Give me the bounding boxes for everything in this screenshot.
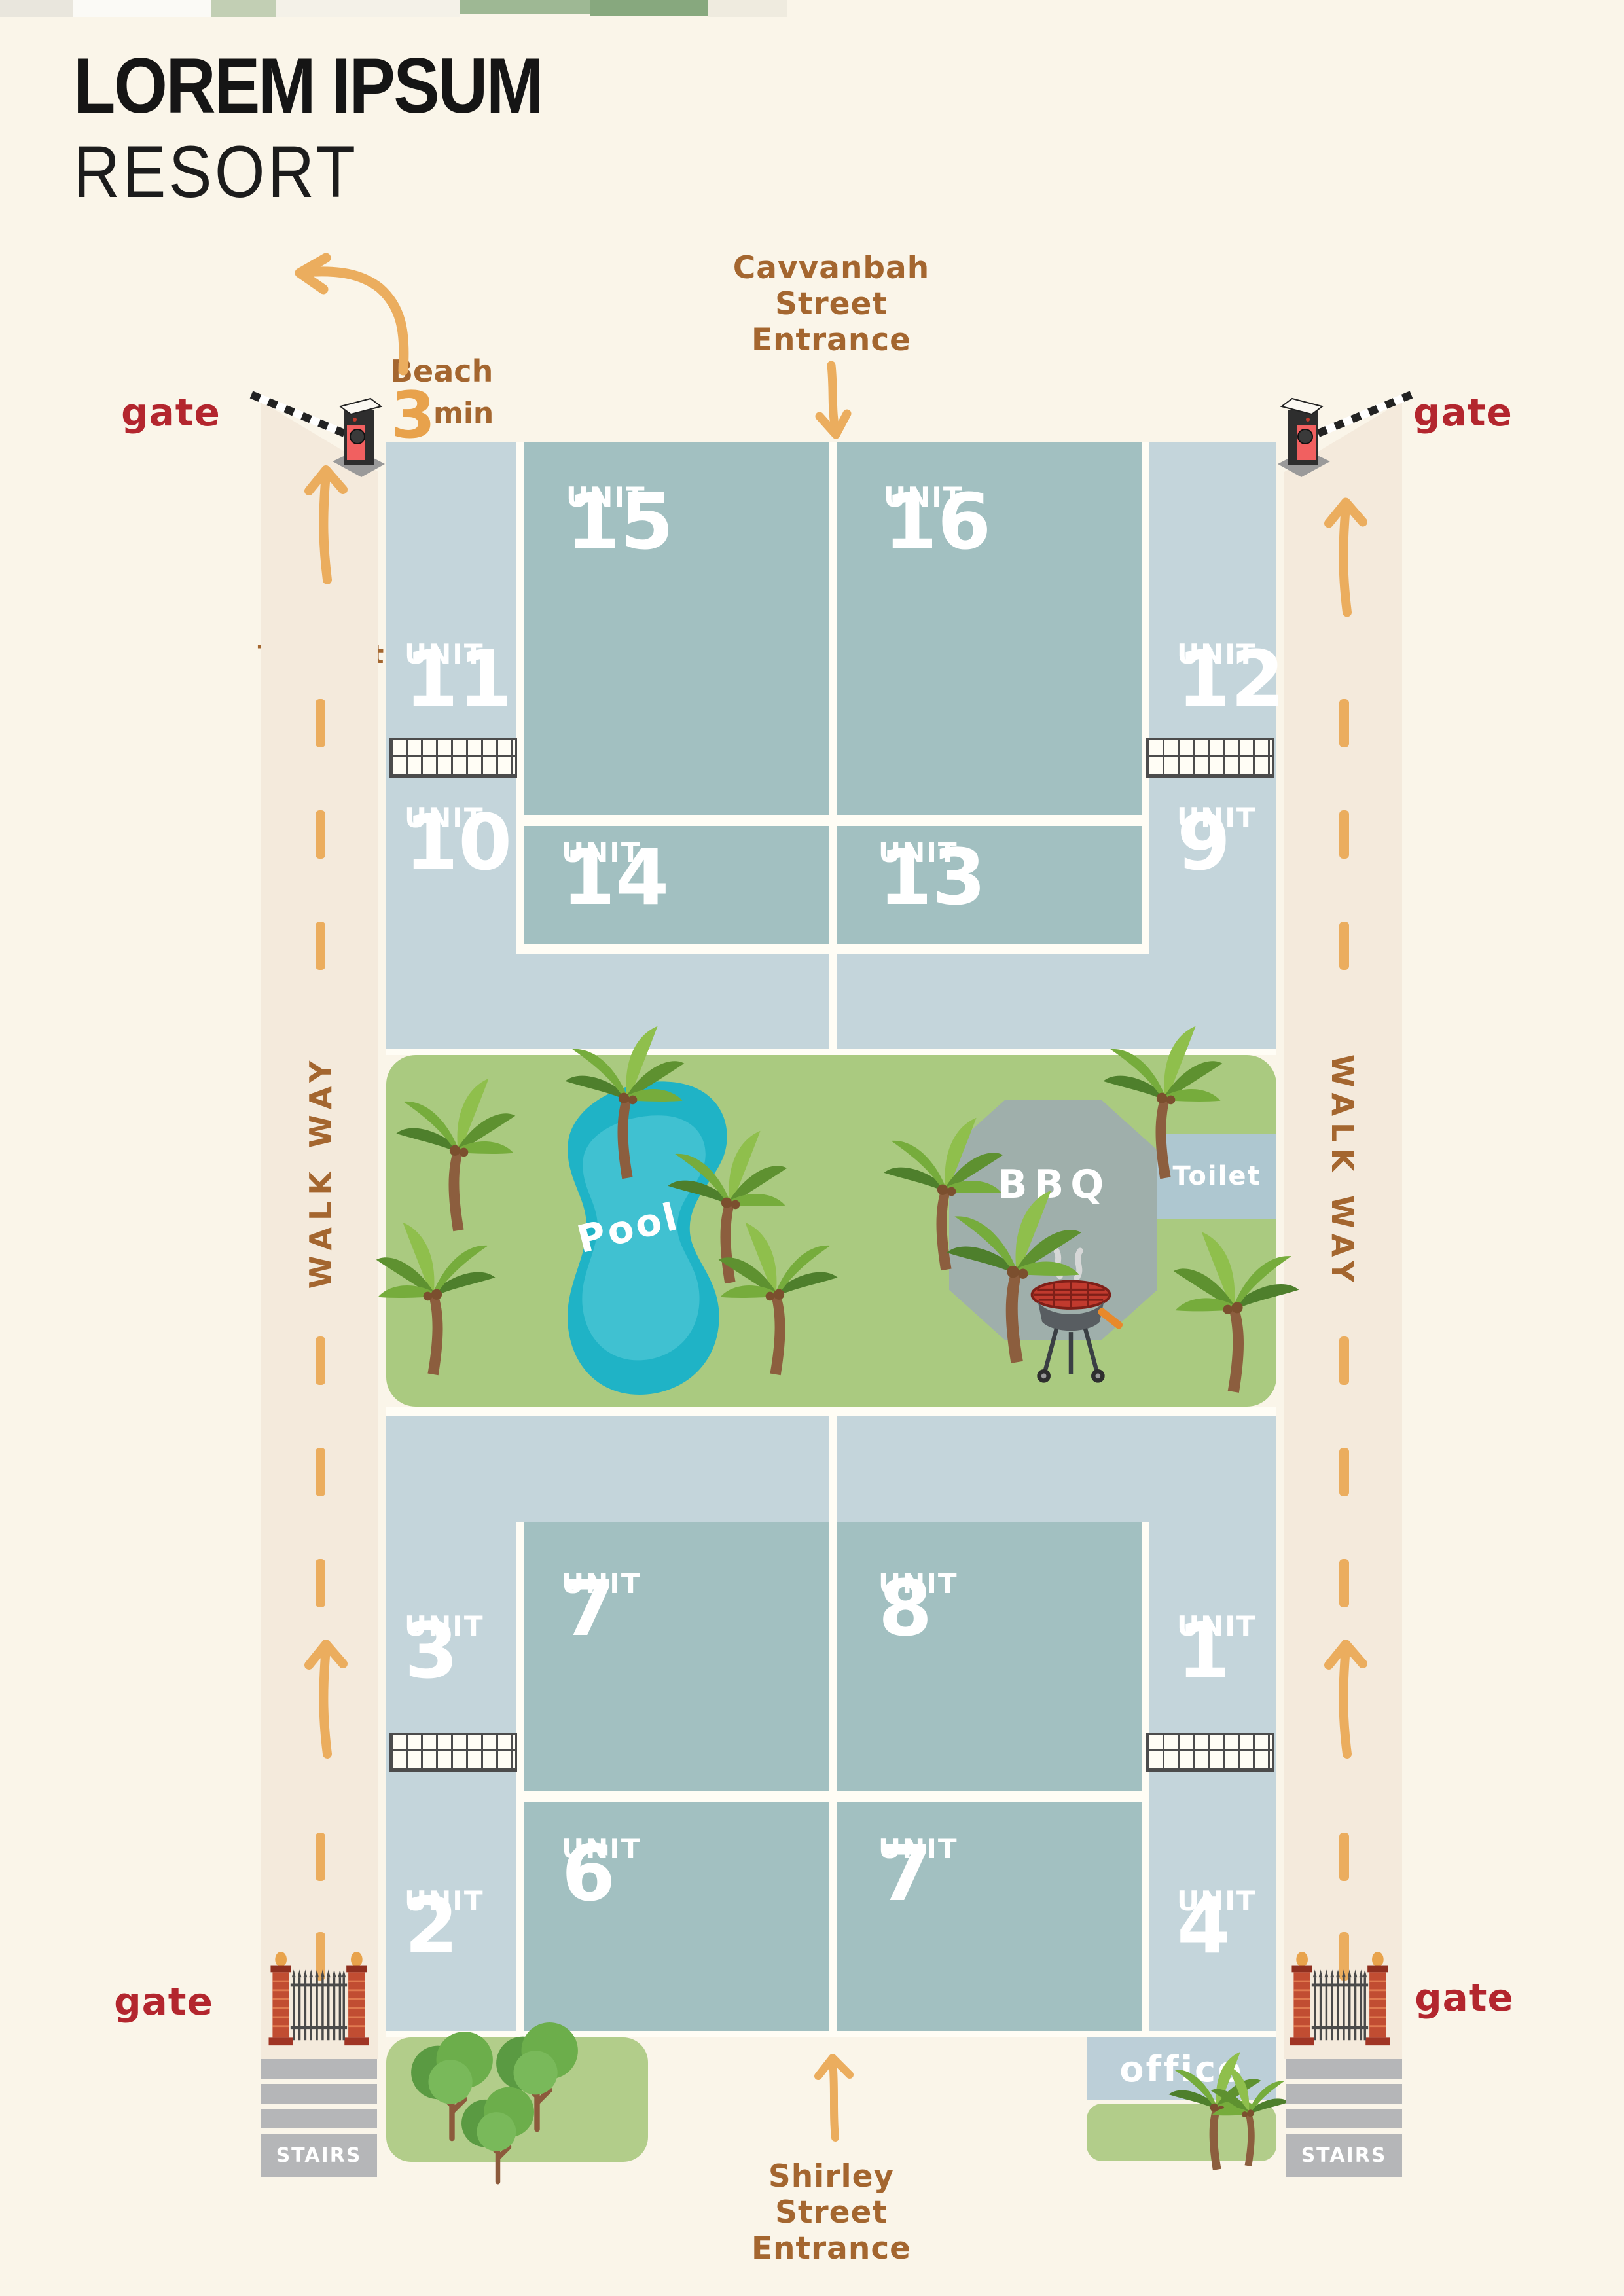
entrance-line: Cavvanbah bbox=[713, 250, 949, 286]
unit-number: 16 bbox=[884, 485, 991, 558]
unit-number: 12 bbox=[1177, 642, 1284, 715]
lane-dash bbox=[1339, 1833, 1349, 1881]
road-line bbox=[829, 1416, 837, 2031]
road-line bbox=[516, 442, 524, 954]
lane-dash bbox=[316, 1833, 325, 1881]
road-line bbox=[829, 442, 837, 1049]
unit-number: 8 bbox=[878, 1571, 932, 1645]
stair-step bbox=[261, 2109, 377, 2128]
stairs-label: STAIRS bbox=[1286, 2134, 1402, 2177]
top-artifact-strip bbox=[460, 0, 590, 14]
gate-label-bottom-right: gate bbox=[1409, 1975, 1520, 2020]
stairs-right: STAIRS bbox=[1286, 2059, 1402, 2178]
stair-step bbox=[1286, 2109, 1402, 2128]
entrance-line: Entrance bbox=[713, 2231, 949, 2267]
up-arrow-icon bbox=[809, 2050, 861, 2142]
walkway-right-label: WALK WAY bbox=[1326, 1031, 1360, 1312]
unit-block-south: UNIT 3 UNIT 7 UNIT 8 UNIT 1 UNIT 2 UNIT … bbox=[386, 1416, 1276, 2031]
top-artifact-strip bbox=[708, 0, 787, 17]
internal-road bbox=[386, 1407, 1276, 1416]
unit-number: 2 bbox=[405, 1889, 458, 1962]
parking-grid bbox=[389, 738, 517, 778]
top-artifact-strip bbox=[590, 0, 708, 16]
turn-left-arrow-icon bbox=[275, 250, 416, 374]
boom-gate-icon bbox=[1263, 376, 1420, 481]
lane-dash bbox=[316, 1559, 325, 1607]
top-artifact-strip bbox=[0, 0, 73, 17]
up-arrow-icon bbox=[295, 1631, 357, 1759]
stairs-left: STAIRS bbox=[261, 2059, 377, 2178]
gate-label-top-left: gate bbox=[115, 390, 226, 435]
resort-map-canvas: LOREM IPSUM RESORT Cavvanbah Street Entr… bbox=[0, 0, 1624, 2296]
unit-block-north: UNIT 11 UNIT 15 UNIT 16 UNIT 12 UNIT 10 … bbox=[386, 442, 1276, 1049]
lane-dash bbox=[316, 810, 325, 859]
palm-tree-icon bbox=[1172, 1214, 1303, 1397]
lane-dash bbox=[1339, 922, 1349, 970]
up-arrow-icon bbox=[1314, 484, 1377, 622]
unit-number: 13 bbox=[878, 840, 986, 914]
lane-dash bbox=[316, 1336, 325, 1385]
lane-dash bbox=[1339, 1336, 1349, 1385]
tree-icon bbox=[450, 2080, 545, 2185]
top-artifact-strip bbox=[276, 0, 460, 17]
lane-dash bbox=[1339, 1559, 1349, 1607]
stairs-label: STAIRS bbox=[261, 2134, 377, 2177]
unit-number: 15 bbox=[566, 485, 674, 558]
walkway-left-label: WALK WAY bbox=[303, 1031, 337, 1312]
unit-number: 1 bbox=[1177, 1614, 1231, 1687]
unit-number: 9 bbox=[1177, 806, 1231, 879]
palm-tree-icon bbox=[943, 1172, 1083, 1368]
lane-dash bbox=[316, 922, 325, 970]
stair-step bbox=[261, 2084, 377, 2104]
gate-label-bottom-left: gate bbox=[108, 1979, 219, 2024]
palm-tree-icon bbox=[374, 1208, 499, 1378]
lane-dash bbox=[1339, 1448, 1349, 1496]
top-artifact-strip bbox=[73, 0, 211, 17]
lane-dash bbox=[1339, 699, 1349, 747]
brick-gate-icon bbox=[1284, 1950, 1396, 2050]
unit-number: 10 bbox=[405, 806, 512, 879]
resort-subtitle: RESORT bbox=[73, 130, 358, 214]
lane-dash bbox=[1339, 810, 1349, 859]
unit-7-north bbox=[524, 1522, 829, 1791]
entrance-line: Shirley bbox=[713, 2159, 949, 2195]
parking-grid bbox=[1146, 1733, 1274, 1772]
unit-number: 14 bbox=[562, 840, 669, 914]
lane-dash bbox=[316, 1448, 325, 1496]
unit-number: 7 bbox=[562, 1571, 615, 1645]
road-line bbox=[1142, 1522, 1149, 2031]
top-artifact-strip bbox=[211, 0, 276, 17]
cavvanbah-entrance-label: Cavvanbah Street Entrance bbox=[713, 250, 949, 358]
resort-title: LOREM IPSUM bbox=[73, 41, 542, 131]
brick-gate-icon bbox=[263, 1950, 374, 2050]
unit-number: 6 bbox=[562, 1837, 615, 1910]
entrance-line: Street bbox=[713, 286, 949, 322]
beach-minutes-unit: min bbox=[433, 397, 494, 430]
stair-step bbox=[1286, 2059, 1402, 2079]
unit-number: 3 bbox=[405, 1614, 458, 1687]
road-line bbox=[516, 1522, 524, 2031]
unit-number: 4 bbox=[1177, 1889, 1231, 1962]
boom-gate-icon bbox=[242, 376, 399, 481]
palm-tree-icon bbox=[1100, 1011, 1224, 1181]
gate-label-top-right: gate bbox=[1407, 390, 1519, 435]
lane-dash bbox=[316, 699, 325, 747]
entrance-line: Street bbox=[713, 2195, 949, 2231]
up-arrow-icon bbox=[1314, 1631, 1377, 1759]
down-arrow-icon bbox=[806, 361, 859, 440]
palm-tree-icon bbox=[1210, 2056, 1291, 2168]
unit-8 bbox=[837, 1522, 1142, 1791]
unit-number: 11 bbox=[405, 642, 512, 715]
shirley-entrance-label: Shirley Street Entrance bbox=[713, 2159, 949, 2267]
entrance-line: Entrance bbox=[713, 322, 949, 358]
stair-step bbox=[1286, 2084, 1402, 2104]
palm-tree-icon bbox=[717, 1208, 841, 1378]
parking-grid bbox=[1146, 738, 1274, 778]
unit-number: 7 bbox=[878, 1837, 932, 1910]
stair-step bbox=[261, 2059, 377, 2079]
road-line bbox=[1142, 442, 1149, 954]
parking-grid bbox=[389, 1733, 517, 1772]
